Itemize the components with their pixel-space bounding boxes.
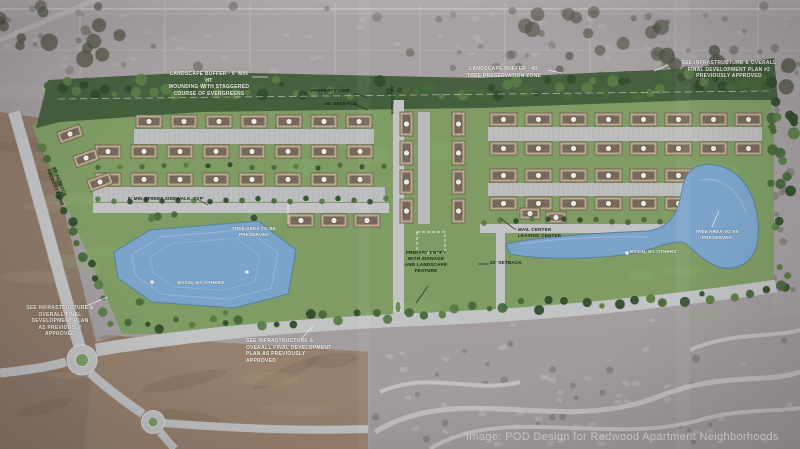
entry-median [395,301,401,313]
fountain-marker [625,251,629,255]
fountain-marker [150,280,154,284]
site-plan-canvas [0,0,800,449]
development-site-plan-photo: LANDSCAPE BUFFER - 6' MIN HT MOUNDING WI… [0,0,800,449]
fountain-marker [245,270,249,274]
